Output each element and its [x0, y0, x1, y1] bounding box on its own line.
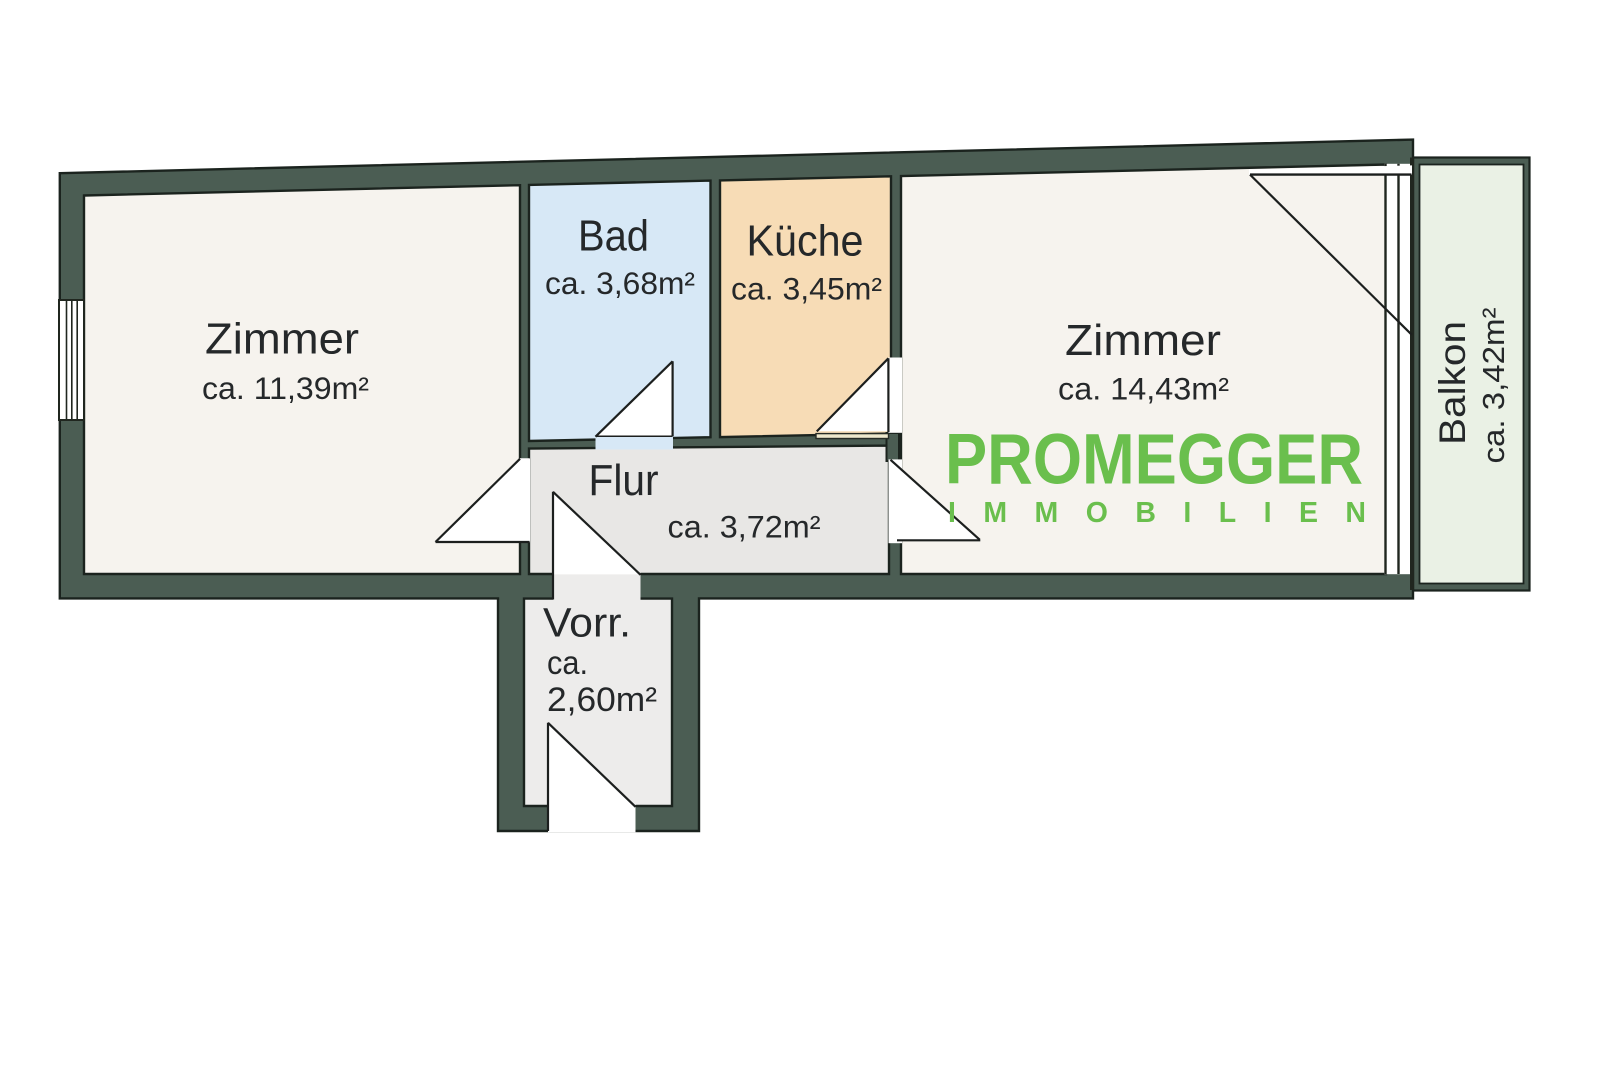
svg-text:Zimmer: Zimmer [1065, 316, 1221, 365]
svg-text:Flur: Flur [589, 456, 659, 505]
svg-text:ca.: ca. [547, 644, 588, 681]
svg-text:ca. 14,43m²: ca. 14,43m² [1058, 371, 1229, 407]
svg-text:Bad: Bad [578, 212, 649, 261]
svg-text:Küche: Küche [747, 217, 864, 266]
svg-text:ca. 3,72m²: ca. 3,72m² [668, 509, 821, 545]
svg-text:Zimmer: Zimmer [205, 315, 359, 364]
svg-text:ca. 3,42m²: ca. 3,42m² [1476, 308, 1511, 464]
svg-text:ca. 3,45m²: ca. 3,45m² [731, 271, 882, 307]
svg-text:ca. 11,39m²: ca. 11,39m² [202, 370, 369, 406]
svg-text:Balkon: Balkon [1432, 321, 1473, 445]
svg-text:2,60m²: 2,60m² [547, 681, 657, 719]
svg-text:Vorr.: Vorr. [543, 600, 631, 646]
svg-text:ca. 3,68m²: ca. 3,68m² [545, 265, 695, 301]
svg-text:PROMEGGER: PROMEGGER [945, 421, 1363, 500]
